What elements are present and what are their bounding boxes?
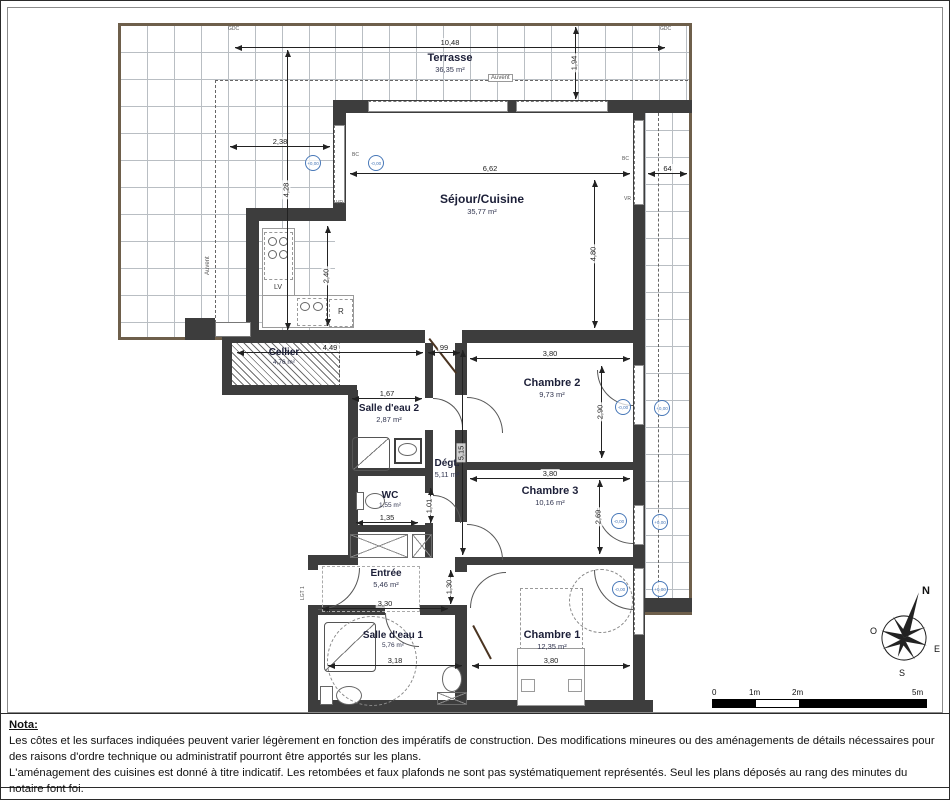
- french-window: [634, 365, 644, 425]
- room-label-chambre1: Chambre 1 12,35 m²: [524, 629, 581, 651]
- compass-s-label: S: [899, 668, 905, 678]
- nota-paragraph-2: L'aménagement des cuisines est donné à t…: [9, 765, 941, 797]
- scale-tick-2m: 2m: [792, 688, 803, 697]
- compass-e-label: E: [934, 644, 940, 654]
- terrace-drain-box: [215, 322, 251, 337]
- wall: [222, 330, 425, 343]
- window-bay: [516, 101, 608, 112]
- compass-rose-icon: N O E S: [862, 580, 947, 685]
- auvent-dashed-line: [215, 80, 688, 81]
- fridge-label: R: [338, 307, 344, 316]
- dim-balcony-width: 64: [648, 173, 687, 174]
- chambre1-door-arc: [470, 572, 506, 608]
- balcony-dashed-line: [658, 103, 659, 608]
- level-marker: +0,00: [652, 581, 668, 597]
- vr-label: VR: [624, 196, 631, 202]
- dim-chambre1-width: 3,80: [472, 665, 630, 666]
- burner: [268, 237, 277, 246]
- dim-terrace-width: 10,48: [235, 47, 665, 48]
- terrace-rim: [645, 612, 692, 615]
- bc-label: BC: [352, 152, 359, 158]
- scale-bar: 0 1m 2m 5m: [712, 688, 928, 712]
- bc-label: BC: [622, 156, 629, 162]
- compass-n-label: N: [922, 585, 930, 597]
- dim-chambre3-width: 3,80: [470, 478, 630, 479]
- window: [634, 120, 644, 205]
- sde1-door-leaf: [472, 625, 492, 659]
- sde2-door-arc: [433, 398, 463, 428]
- room-label-sde1: Salle d'eau 1 5,76 m²: [363, 630, 423, 649]
- pillow: [568, 679, 582, 692]
- dim-sde2-width: 1,67: [352, 398, 422, 399]
- auvent-dashed-line: [215, 80, 216, 333]
- compass-svg: N O E S: [862, 580, 947, 685]
- closet: [412, 534, 432, 558]
- room-label-chambre3: Chambre 3 10,16 m²: [522, 485, 579, 507]
- sde1-cabinet: [320, 686, 333, 705]
- dim-cellier-width: 4,49: [237, 352, 423, 353]
- closet-washing-column: [350, 534, 408, 558]
- auvent-label: Auvent: [488, 74, 513, 82]
- sink-bowl: [300, 302, 310, 311]
- dim-wc-width: 1,35: [356, 522, 418, 523]
- level-marker: -0,00: [611, 513, 627, 529]
- terrace-tiles-left: [120, 25, 335, 337]
- french-window: [634, 568, 644, 635]
- dim-kitchen-height: 2,40: [327, 226, 328, 326]
- chambre1-turning-circle: [569, 569, 633, 633]
- compass-o-label: O: [870, 626, 877, 636]
- sde1-wc-bowl: [442, 666, 462, 692]
- dim-sde1-width: 3,18: [328, 665, 462, 666]
- vr-label: VR: [336, 200, 343, 206]
- chambre3-door-arc: [467, 524, 503, 560]
- scale-bar-strip: [712, 699, 927, 708]
- dim-chambre3-height: 2,69: [599, 480, 600, 554]
- dim-sejour-width: 6,62: [350, 173, 630, 174]
- room-label-cellier: Cellier 4,76 m²: [269, 347, 300, 366]
- scale-seg-black: [713, 700, 756, 707]
- dim-terrace-right: 1,94: [575, 27, 576, 99]
- dim-door-width: 99: [428, 352, 460, 353]
- scale-tick-5m: 5m: [912, 688, 923, 697]
- wall: [308, 608, 318, 712]
- lgt-label: LGT 1: [300, 586, 306, 600]
- partition: [425, 430, 433, 493]
- gdc-label: GDC: [660, 26, 671, 32]
- room-label-sde2: Salle d'eau 2 2,87 m²: [359, 403, 419, 424]
- dim-corridor-length: 5,15: [462, 350, 463, 555]
- chambre2-door-arc: [467, 397, 503, 433]
- nota-title: Nota:: [9, 719, 38, 731]
- wall: [308, 555, 318, 570]
- window: [334, 125, 345, 203]
- room-label-wc: WC 1,55 m²: [379, 490, 401, 509]
- wc-tank: [356, 492, 364, 510]
- floor-plan: Auvent Auvent GDC GDC: [0, 0, 950, 713]
- room-label-degt: Dégt. 5,11 m²: [435, 458, 460, 479]
- wall-cap: [645, 598, 692, 612]
- room-label-sejour: Séjour/Cuisine 35,77 m²: [440, 192, 524, 216]
- level-marker: -0,00: [615, 399, 631, 415]
- sde2-shower: [352, 437, 390, 471]
- dim-terrace-left-height: 4,28: [287, 50, 288, 330]
- level-marker: +0,00: [654, 400, 670, 416]
- dim-sejour-height: 4,80: [594, 180, 595, 328]
- french-window: [634, 505, 644, 545]
- level-marker: -0,00: [368, 155, 384, 171]
- gdc-label: GDC: [228, 26, 239, 32]
- scale-tick-0: 0: [712, 688, 716, 697]
- level-marker: +0,00: [305, 155, 321, 171]
- dim-entree-height: 1,30: [450, 570, 451, 604]
- terrace-rim: [118, 23, 121, 340]
- balcony-tiles-right: [645, 103, 690, 613]
- room-label-entree: Entrée 5,46 m²: [370, 568, 401, 589]
- sde2-basin-bowl: [398, 443, 417, 456]
- sink-bowl: [313, 302, 323, 311]
- window-bay: [368, 101, 508, 112]
- burner: [268, 250, 277, 259]
- level-marker: +0,00: [652, 514, 668, 530]
- wall: [455, 557, 467, 572]
- auvent-label: Auvent: [205, 256, 211, 275]
- partition: [348, 525, 433, 532]
- scale-seg-black: [799, 700, 926, 707]
- pillow: [521, 679, 535, 692]
- dim-entree-width: 3,30: [322, 608, 448, 609]
- nota-paragraph-1: Les côtes et les surfaces indiquées peuv…: [9, 733, 941, 765]
- terrace-tiles-top: [335, 25, 690, 103]
- sde1-wc-base: [437, 692, 467, 705]
- terrace-rim: [118, 23, 692, 26]
- dim-terrace-left-width: 2,38: [230, 146, 330, 147]
- level-marker: -0,00: [612, 581, 628, 597]
- nota-block: Nota: Les côtes et les surfaces indiquée…: [0, 713, 950, 788]
- wall: [246, 208, 346, 221]
- dim-wc-height: 1,01: [430, 488, 431, 523]
- dim-chambre2-width: 3,80: [470, 358, 630, 359]
- dishwasher-label: LV: [274, 284, 282, 291]
- wall: [462, 330, 645, 343]
- dim-chambre2-height: 2,90: [601, 366, 602, 458]
- wall: [222, 385, 357, 395]
- scale-seg-white: [756, 700, 799, 707]
- wall-stub: [185, 318, 215, 340]
- room-label-chambre2: Chambre 2 9,73 m²: [524, 377, 581, 399]
- room-label-terrasse: Terrasse 36,35 m²: [427, 52, 472, 74]
- scale-tick-1m: 1m: [749, 688, 760, 697]
